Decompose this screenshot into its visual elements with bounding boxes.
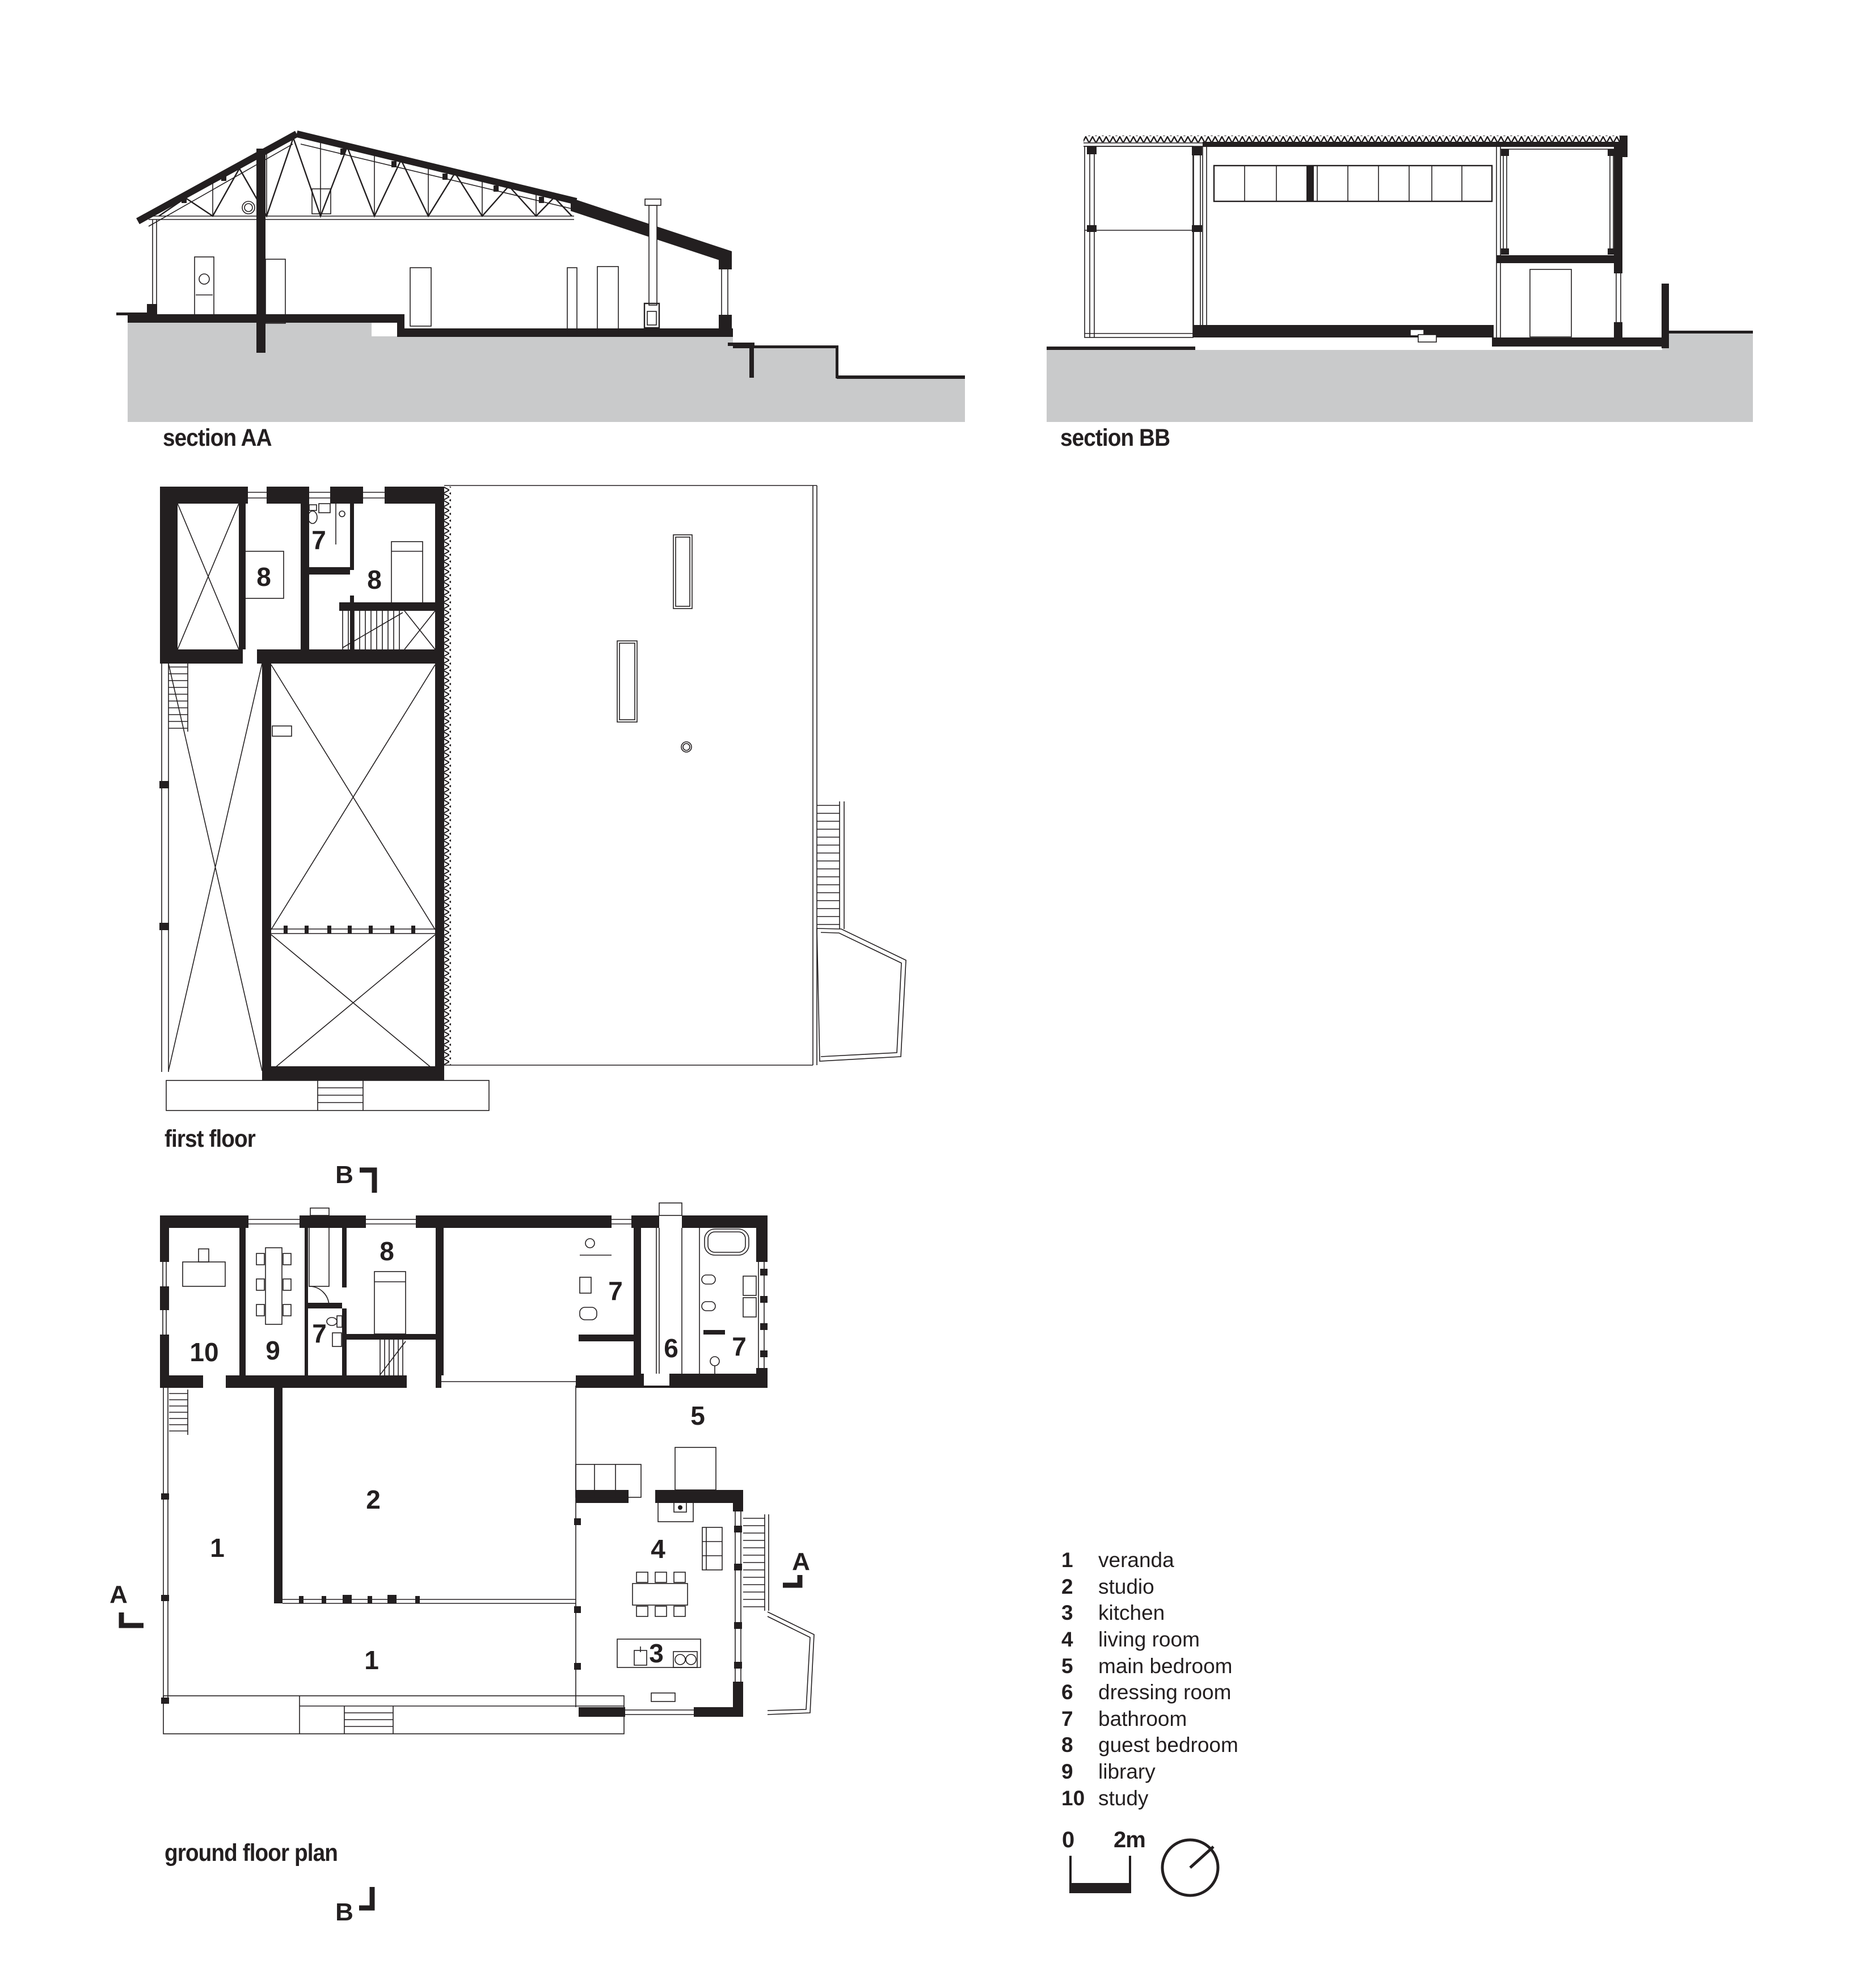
- svg-text:B: B: [335, 1898, 353, 1926]
- legend-name: kitchen: [1098, 1601, 1165, 1625]
- section-aa-drawing: [116, 134, 965, 422]
- room-legend: 1veranda 2studio 3kitchen 4living room 5…: [1061, 1547, 1238, 1812]
- room-label-library: 9: [265, 1336, 280, 1365]
- room-label-main-bedroom: 5: [690, 1401, 705, 1430]
- room-label-veranda-south: 1: [364, 1645, 379, 1675]
- legend-name: bathroom: [1098, 1707, 1187, 1731]
- legend-item: 5main bedroom: [1061, 1653, 1238, 1679]
- skylights: [617, 535, 692, 722]
- stairs: [343, 611, 435, 649]
- first-floor-plan: 8 7 8: [159, 485, 906, 1111]
- legend-name: guest bedroom: [1098, 1733, 1238, 1757]
- east-external-stair-ground: [743, 1514, 769, 1611]
- bath-a-fixtures: [327, 1316, 342, 1346]
- legend-name: living room: [1098, 1628, 1200, 1652]
- scale-2m-label: 2m: [1114, 1827, 1145, 1853]
- scale-zero-label: 0: [1062, 1827, 1074, 1853]
- drawing-canvas: 8 7 8: [0, 0, 1876, 1976]
- legend-item: 3kitchen: [1061, 1600, 1238, 1627]
- legend-num: 4: [1061, 1628, 1098, 1652]
- legend-item: 10study: [1061, 1785, 1238, 1812]
- section-marker-a-right: A: [783, 1548, 810, 1585]
- room-label-bath-c: 7: [732, 1332, 747, 1361]
- west-external-stair-ground: [169, 1390, 188, 1435]
- room-label-dressing: 6: [664, 1333, 678, 1363]
- legend-item: 7bathroom: [1061, 1706, 1238, 1733]
- legend-num: 3: [1061, 1601, 1098, 1625]
- legend-item: 2studio: [1061, 1574, 1238, 1601]
- legend-item: 6dressing room: [1061, 1679, 1238, 1706]
- living-furniture: [633, 1501, 722, 1616]
- legend-name: studio: [1098, 1575, 1154, 1599]
- room-label-bath: 7: [311, 525, 326, 555]
- room-label-veranda-west: 1: [210, 1533, 225, 1563]
- legend-num: 6: [1061, 1681, 1098, 1704]
- scale-bar: [1069, 1856, 1131, 1893]
- section-bb-right-wing: [1492, 142, 1663, 347]
- room-label-bath-b: 7: [608, 1276, 623, 1306]
- bath-c-fixtures: [702, 1229, 756, 1375]
- legend-num: 9: [1061, 1760, 1098, 1784]
- clerestory-windows: [1214, 166, 1492, 201]
- wood-stove-and-flue: [644, 199, 661, 328]
- legend-num: 8: [1061, 1733, 1098, 1757]
- study-furniture: [183, 1249, 225, 1286]
- room-label-living: 4: [651, 1534, 665, 1564]
- legend-num: 7: [1061, 1707, 1098, 1731]
- legend-name: library: [1098, 1760, 1156, 1784]
- legend-num: 2: [1061, 1575, 1098, 1599]
- section-marker-b-bottom: B: [335, 1887, 372, 1926]
- legend-item: 4living room: [1061, 1627, 1238, 1653]
- legend-name: study: [1098, 1787, 1148, 1810]
- ground-floor-caption: ground floor plan: [165, 1839, 338, 1867]
- room-label-bath-a: 7: [312, 1319, 327, 1348]
- room-label-guest: 8: [380, 1236, 394, 1266]
- balustrade-posts: [284, 926, 415, 934]
- section-bb-drawing: [1047, 136, 1753, 422]
- library-furniture: [256, 1248, 291, 1324]
- legend-item: 9library: [1061, 1759, 1238, 1785]
- room-label-kitchen: 3: [649, 1639, 664, 1668]
- svg-text:A: A: [792, 1548, 810, 1576]
- north-arrow-icon: [1162, 1840, 1218, 1895]
- section-bb-caption: section BB: [1060, 424, 1170, 452]
- bath-b-fixtures: [580, 1239, 612, 1320]
- legend-num: 1: [1061, 1548, 1098, 1572]
- svg-text:B: B: [335, 1161, 353, 1189]
- ground-floor-plan: 10 9 7 8 7 6 7 5 2 1 4 3 1 B B A A: [109, 1161, 814, 1926]
- architectural-drawing-sheet: { "page": {"background": "#ffffff", "ink…: [0, 0, 1876, 1976]
- first-floor-caption: first floor: [165, 1125, 255, 1153]
- room-label-studio: 2: [366, 1485, 381, 1514]
- legend-item: 1veranda: [1061, 1547, 1238, 1574]
- west-external-stair: [168, 664, 188, 732]
- section-marker-b-top: B: [335, 1161, 374, 1193]
- east-external-stair: [817, 801, 844, 929]
- legend-num: 5: [1061, 1654, 1098, 1678]
- svg-text:A: A: [109, 1581, 128, 1608]
- legend-name: dressing room: [1098, 1681, 1231, 1704]
- stairs-ground: [380, 1340, 406, 1377]
- room-label-guest-a: 8: [256, 562, 271, 592]
- legend-num: 10: [1061, 1787, 1098, 1810]
- room-label-study: 10: [189, 1337, 218, 1367]
- legend-item: 8guest bedroom: [1061, 1732, 1238, 1759]
- legend-name: main bedroom: [1098, 1654, 1233, 1678]
- legend-name: veranda: [1098, 1548, 1174, 1572]
- section-marker-a-left: A: [109, 1581, 144, 1625]
- section-bb-veranda: [1085, 146, 1202, 337]
- section-aa-caption: section AA: [163, 424, 272, 452]
- room-label-guest-b: 8: [367, 565, 382, 594]
